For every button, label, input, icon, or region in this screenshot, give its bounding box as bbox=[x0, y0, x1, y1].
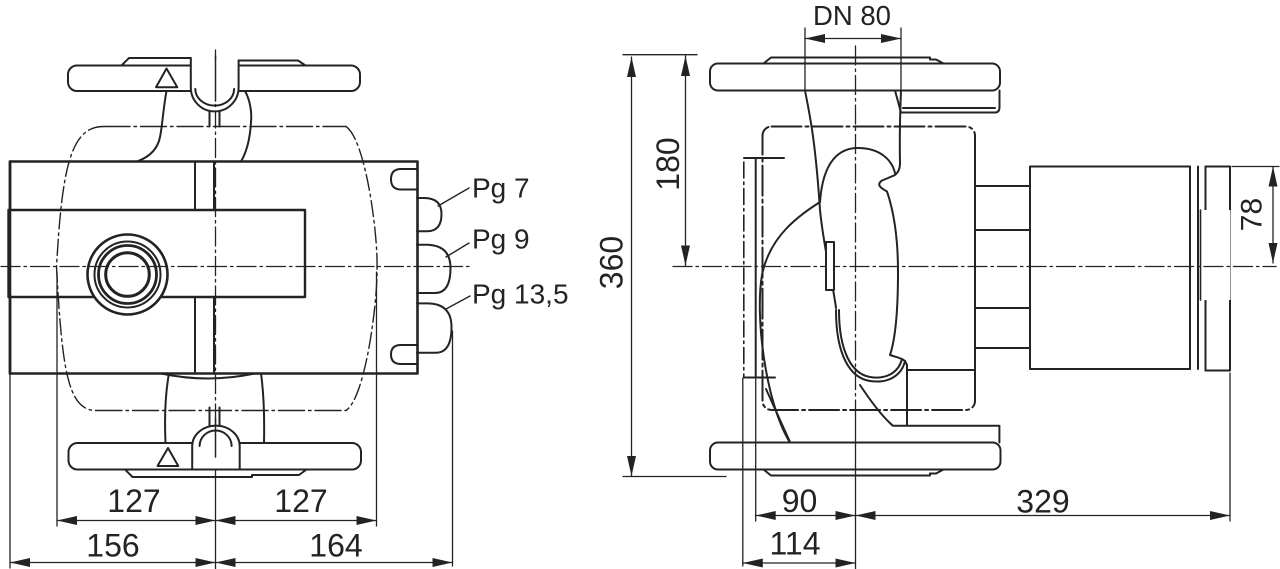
svg-text:329: 329 bbox=[1016, 484, 1069, 520]
svg-text:Pg 9: Pg 9 bbox=[472, 224, 530, 255]
svg-text:DN 80: DN 80 bbox=[813, 0, 891, 31]
svg-text:78: 78 bbox=[1236, 198, 1269, 231]
svg-text:180: 180 bbox=[650, 137, 686, 190]
svg-text:164: 164 bbox=[309, 528, 362, 564]
svg-text:Pg 13,5: Pg 13,5 bbox=[472, 279, 569, 310]
svg-text:127: 127 bbox=[107, 483, 160, 519]
svg-text:90: 90 bbox=[782, 483, 818, 519]
svg-text:127: 127 bbox=[274, 483, 327, 519]
svg-text:156: 156 bbox=[86, 528, 139, 564]
svg-text:360: 360 bbox=[594, 236, 630, 289]
svg-text:114: 114 bbox=[769, 526, 820, 562]
svg-text:Pg 7: Pg 7 bbox=[472, 173, 530, 204]
